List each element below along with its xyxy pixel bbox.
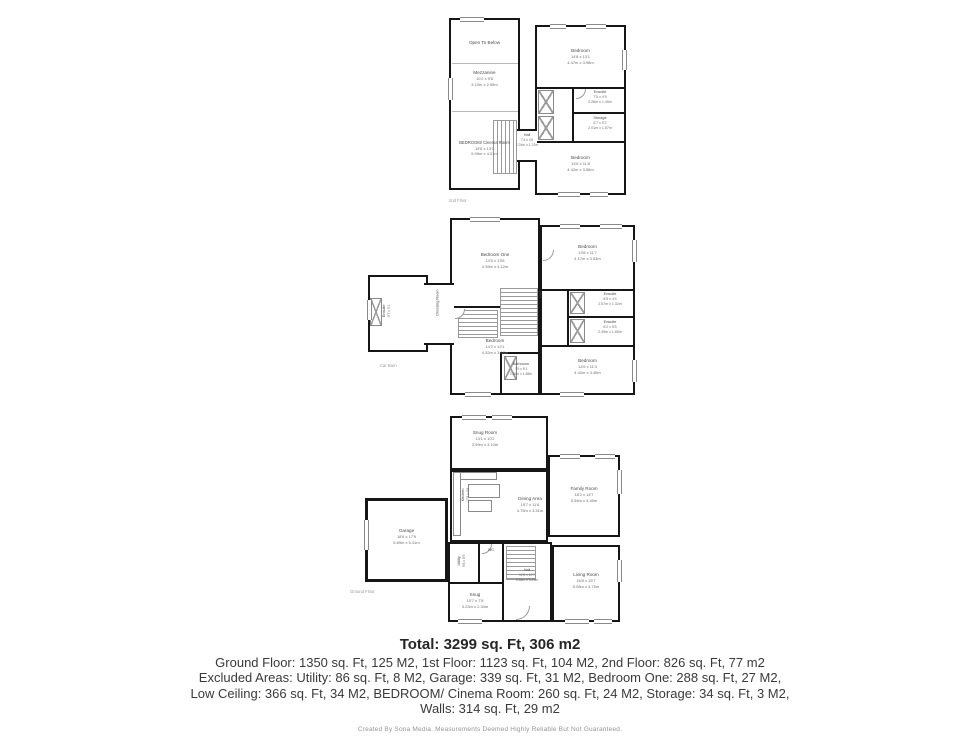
wall (452, 63, 518, 64)
window (460, 17, 484, 22)
room-label-hall: Hall 7'4 x 4'6 2.24m x 1.37m (511, 133, 543, 147)
wall (574, 112, 626, 114)
credit-line: Created By Sona Media. Measurements Deem… (0, 726, 980, 733)
kitchen-island (468, 500, 492, 512)
window (560, 392, 584, 397)
room-label-snug: Snug 10'7 x 7'8 3.23m x 2.34m (448, 592, 502, 609)
window (586, 24, 606, 29)
room-label-bathroom: Bathroom 7'9 x 6'1 2.36m x 1.85m (502, 362, 540, 376)
closet (570, 319, 585, 343)
room-label-ensuite: Ensuite 7'5 x 4'9 2.26m x 1.45m (574, 90, 626, 105)
wall (567, 289, 569, 347)
window (565, 619, 589, 624)
room-label-family-room: Family Room 18'2 x 14'7 5.54m x 4.45m (548, 486, 620, 503)
wall (448, 582, 504, 584)
window (470, 217, 500, 222)
room-label-garage: Garage 18'8 x 17'9 5.69m x 5.41m (365, 528, 448, 545)
wall (535, 141, 626, 143)
window (492, 415, 512, 420)
room-label-hall: Hall 11'8 x 10'7 3.56m x 3.23m (502, 568, 552, 582)
room-label-hall-vertical: Hall (538, 282, 543, 308)
summary-excluded-line3: Walls: 314 sq. Ft, 29 m2 (0, 701, 980, 716)
room-label-bedroom-one: Bedroom One 14'5 x 13'6 4.39m x 4.12m (450, 252, 540, 269)
wall (452, 111, 518, 112)
annotation-car-barn: Car Barn (380, 363, 397, 368)
room-label-open-to-below: Open To Below (449, 40, 520, 46)
window (590, 192, 608, 197)
wall (567, 316, 635, 318)
closet (538, 90, 554, 114)
window (458, 619, 482, 624)
room-label-kitchen: Kitchen 17'4 x 8'8 (461, 473, 471, 517)
floor-label-second: 2nd Floor (449, 198, 467, 203)
window (558, 192, 580, 197)
wall (540, 345, 635, 347)
summary-excluded-line2: Low Ceiling: 366 sq. Ft, 34 M2, BEDROOM/… (0, 686, 980, 701)
wall (540, 289, 635, 291)
floor-label-ground: Ground Floor (350, 589, 375, 594)
room-label-dressing-room: Dressing Room (435, 281, 440, 325)
room-label-bedroom-top: Bedroom 14'8 x 13'1 4.47m x 3.98m (535, 48, 626, 65)
room-label-ensuite-wing: Ensuite 9'7 x 5'1 (382, 290, 392, 332)
room-label-mezzanine: Mezzanine 10'2 x 9'8 3.10m x 2.95m (449, 70, 520, 87)
room-label-ensuite-a: Ensuite 8'5 x 4'4 2.57m x 1.32m (585, 292, 635, 307)
kitchen-counter (453, 472, 461, 536)
closet (570, 292, 585, 314)
stairs (458, 310, 498, 338)
room-label-bedroom-bottom: Bedroom 14'6 x 11'8 4.42m x 3.56m (535, 155, 626, 172)
window (600, 224, 622, 229)
room-label-ensuite-b: Ensuite 8'2 x 5'5 2.49m x 1.65m (585, 320, 635, 335)
stairs (500, 288, 538, 336)
summary-block: Total: 3299 sq. Ft, 306 m2 Ground Floor:… (0, 636, 980, 733)
window (560, 224, 580, 229)
room-label-cinema-room: BEDROOM/ Cinema Room 19'8 x 13'2 5.99m x… (449, 140, 520, 156)
summary-total: Total: 3299 sq. Ft, 306 m2 (0, 636, 980, 653)
room-label-bedroom-top-right: Bedroom 13'8 x 11'7 4.17m x 3.53m (540, 244, 635, 261)
room-label-snug-room: Snug Room 13'1 x 10'2 3.99m x 3.10m (450, 430, 520, 447)
window (595, 454, 615, 459)
room-label-bedroom-bottom-right: Bedroom 14'6 x 11'4 4.42m x 3.45m (540, 358, 635, 375)
room-label-utility: Utility 9'8 x 8'9 (457, 541, 467, 581)
window (367, 300, 372, 320)
room-label-wc: WC (480, 548, 502, 553)
floorplan-page: Open To Below Mezzanine 10'2 x 9'8 3.10m… (0, 0, 980, 751)
window (594, 619, 612, 624)
summary-floors-line: Ground Floor: 1350 sq. Ft, 125 M2, 1st F… (0, 655, 980, 670)
room-label-storage: Storage 6'7 x 5'2 2.01m x 1.57m (574, 116, 626, 131)
window (465, 392, 491, 397)
window (560, 454, 580, 459)
summary-excluded-line1: Excluded Areas: Utility: 86 sq. Ft, 8 M2… (0, 670, 980, 685)
room-label-living-room: Living Room 16'8 x 15'7 5.08m x 4.75m (552, 572, 620, 589)
window (462, 415, 486, 420)
window (550, 24, 566, 29)
room-label-bedroom-mid: Bedroom 14'2 x 12'1 4.32m x 3.68m (450, 338, 540, 355)
